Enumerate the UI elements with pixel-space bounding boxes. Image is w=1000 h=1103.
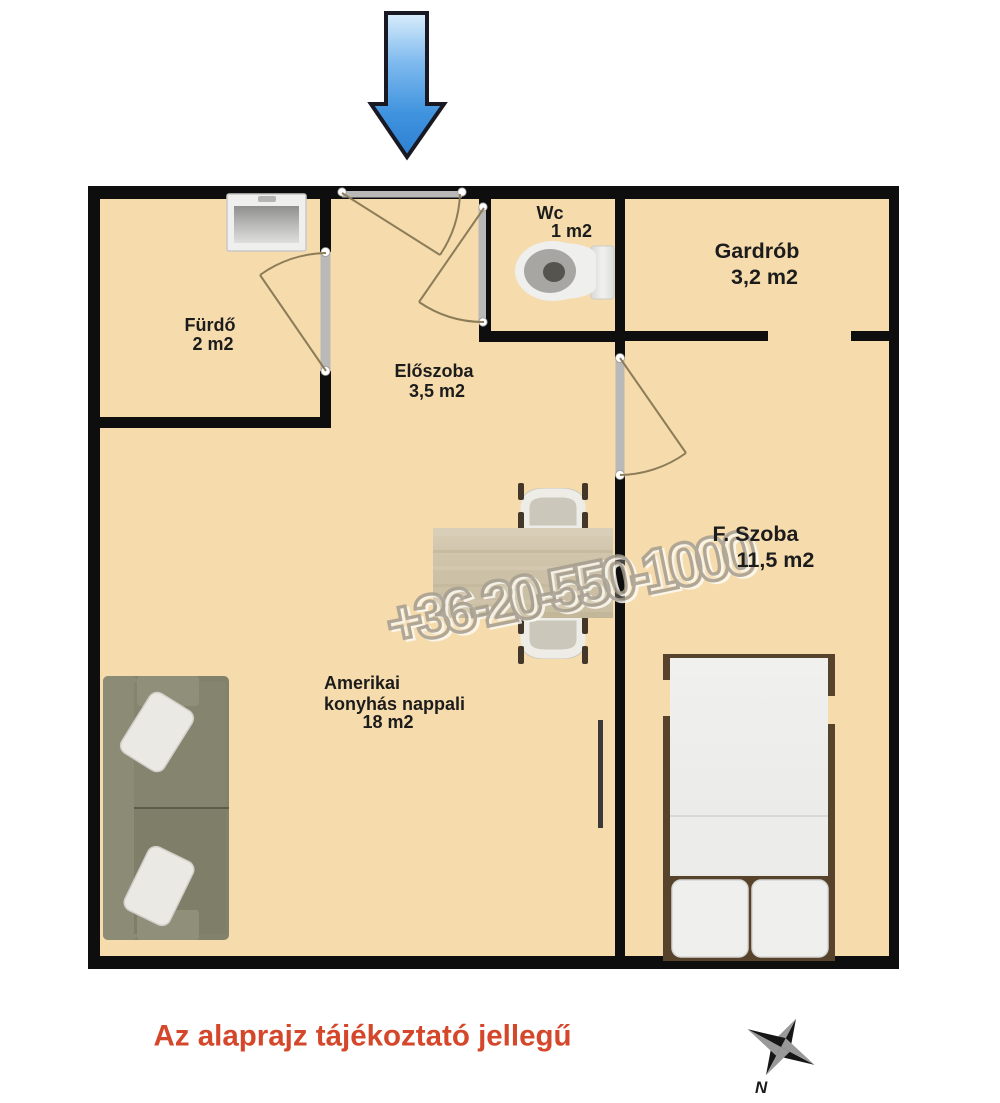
svg-text:Amerikai: Amerikai (324, 673, 400, 693)
svg-text:Gardrób: Gardrób (715, 239, 800, 263)
svg-text:N: N (755, 1078, 768, 1097)
svg-text:F. Szoba: F. Szoba (712, 522, 799, 546)
svg-text:Az alaprajz tájékoztató jelleg: Az alaprajz tájékoztató jellegű (153, 1020, 571, 1053)
svg-text:3,5 m2: 3,5 m2 (409, 381, 465, 401)
svg-text:2 m2: 2 m2 (192, 334, 233, 354)
svg-text:18 m2: 18 m2 (363, 712, 414, 732)
svg-text:1 m2: 1 m2 (551, 221, 592, 241)
svg-text:Előszoba: Előszoba (394, 361, 474, 381)
svg-text:Wc: Wc (537, 203, 564, 223)
svg-text:Fürdő: Fürdő (185, 315, 236, 335)
svg-text:konyhás nappali: konyhás nappali (324, 694, 465, 714)
svg-text:3,2 m2: 3,2 m2 (731, 265, 798, 289)
svg-text:11,5 m2: 11,5 m2 (737, 548, 815, 572)
